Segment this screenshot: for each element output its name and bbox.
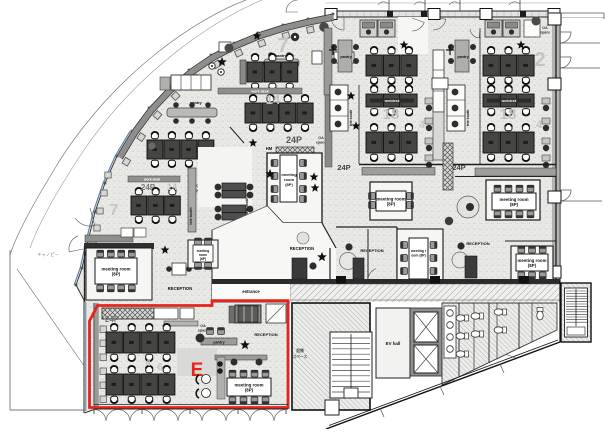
- svg-text:6: 6: [157, 362, 163, 373]
- svg-text:workdesk: workdesk: [501, 99, 517, 103]
- svg-text:設備: 設備: [296, 348, 304, 353]
- svg-text:18: 18: [383, 106, 400, 123]
- svg-text:4: 4: [419, 119, 426, 131]
- svg-text:oom (8P): oom (8P): [411, 253, 426, 257]
- svg-text:space: space: [540, 30, 550, 34]
- svg-text:24P: 24P: [141, 183, 156, 192]
- svg-text:RECEPTION: RECEPTION: [254, 332, 277, 337]
- svg-text:(8P): (8P): [112, 272, 121, 277]
- svg-text:24P: 24P: [105, 315, 120, 324]
- svg-text:RECEPTION: RECEPTION: [466, 241, 489, 246]
- svg-text:EV hall: EV hall: [386, 341, 401, 346]
- svg-text:RECEPTION: RECEPTION: [290, 246, 314, 251]
- svg-text:24P: 24P: [286, 135, 302, 145]
- svg-text:(8P): (8P): [245, 388, 254, 393]
- svg-text:7: 7: [110, 202, 119, 219]
- svg-text:pantry: pantry: [213, 341, 225, 345]
- svg-text:(6P): (6P): [200, 257, 206, 261]
- svg-text:スペース: スペース: [293, 354, 308, 359]
- svg-text:RECEPTION: RECEPTION: [168, 286, 192, 291]
- svg-text:workdesk: workdesk: [384, 99, 400, 103]
- svg-text:(8P): (8P): [285, 182, 293, 187]
- svg-text:(8P): (8P): [387, 202, 396, 207]
- svg-text:pantry: pantry: [340, 55, 352, 59]
- svg-text:tele booth: tele booth: [349, 110, 353, 126]
- svg-text:14: 14: [167, 182, 177, 192]
- svg-text:24P: 24P: [337, 163, 350, 172]
- svg-text:24P: 24P: [452, 163, 465, 172]
- svg-text:space: space: [316, 140, 326, 144]
- svg-text:tele booth: tele booth: [189, 207, 193, 224]
- svg-text:(8P): (8P): [510, 202, 519, 207]
- svg-text:RECEPTION: RECEPTION: [360, 248, 383, 253]
- svg-text:HM: HM: [266, 146, 273, 151]
- svg-text:4: 4: [145, 358, 151, 369]
- svg-text:14: 14: [266, 92, 281, 107]
- svg-text:OA: OA: [542, 26, 548, 30]
- svg-text:pantry: pantry: [457, 55, 469, 59]
- svg-text:2: 2: [534, 49, 545, 71]
- svg-text:4: 4: [536, 119, 543, 131]
- svg-text:OA: OA: [200, 324, 206, 328]
- svg-text:(8P): (8P): [528, 263, 537, 268]
- svg-text:tele booth: tele booth: [466, 110, 470, 126]
- svg-text:work desk: work desk: [143, 178, 161, 182]
- svg-text:meeting r: meeting r: [411, 249, 427, 253]
- svg-text:キャノピー: キャノピー: [37, 252, 58, 257]
- svg-text:tele booth: tele booth: [245, 198, 249, 215]
- svg-text:18: 18: [500, 106, 517, 123]
- svg-text:OA: OA: [318, 136, 324, 140]
- svg-text:entrance: entrance: [242, 289, 260, 294]
